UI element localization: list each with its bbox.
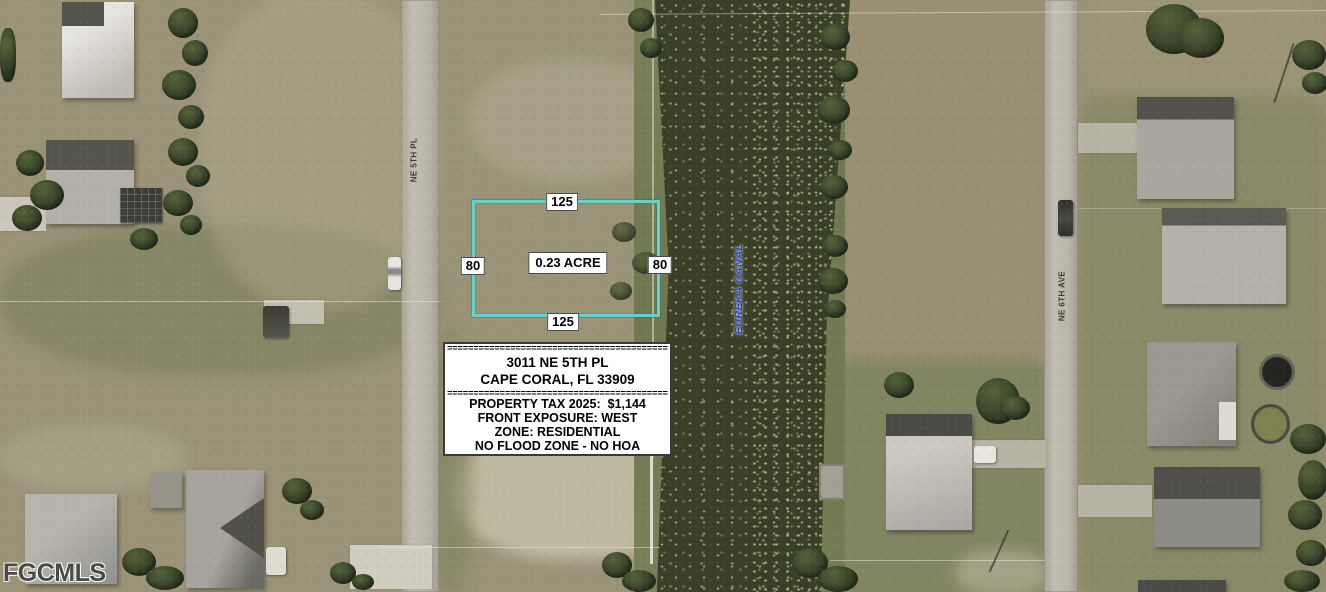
tree xyxy=(1290,424,1326,454)
house-roof xyxy=(1162,208,1286,304)
car xyxy=(263,306,289,338)
lot-dim-top-label: 125 xyxy=(546,193,578,211)
lot-dim-right-label: 80 xyxy=(648,256,672,274)
tree xyxy=(0,28,16,82)
house-roof xyxy=(886,414,972,530)
round-pool xyxy=(1251,404,1290,444)
tree xyxy=(884,372,914,398)
canal-water xyxy=(655,0,850,592)
aerial-listing-map: 125 80 80 125 0.23 ACRE ================… xyxy=(0,0,1326,592)
tree xyxy=(1296,540,1326,566)
mls-watermark: FGCMLS xyxy=(3,559,106,588)
tree xyxy=(168,138,198,166)
parcel-line xyxy=(830,560,1045,561)
pool-screen-enclosure xyxy=(120,188,162,223)
house-roof xyxy=(1137,97,1234,199)
zone-line: ZONE: RESIDENTIAL xyxy=(495,426,621,440)
property-tax-line: PROPERTY TAX 2025: $1,144 xyxy=(469,398,646,412)
tree xyxy=(1000,396,1030,420)
parcel-line xyxy=(0,301,441,302)
tree xyxy=(182,40,208,66)
tree xyxy=(1288,500,1322,530)
tree xyxy=(178,105,204,129)
tree xyxy=(832,60,858,82)
tree xyxy=(820,175,848,199)
tree xyxy=(640,38,662,58)
tree xyxy=(822,235,848,257)
round-pool xyxy=(1259,354,1295,390)
seawall-line xyxy=(650,456,653,564)
tree xyxy=(300,500,324,520)
car xyxy=(974,446,996,463)
house-roof xyxy=(1138,580,1226,592)
driveway xyxy=(1078,485,1152,517)
tree xyxy=(1292,40,1326,70)
lot-dim-left-label: 80 xyxy=(461,257,485,275)
address-line-2: CAPE CORAL, FL 33909 xyxy=(480,371,634,388)
car xyxy=(1058,200,1073,236)
property-info-box: ========================================… xyxy=(443,342,672,456)
street-name-ne-6th-ave: NE 6TH AVE xyxy=(1058,271,1067,321)
dock xyxy=(819,464,845,500)
separator-line: ========================================… xyxy=(445,344,670,353)
tree xyxy=(168,8,198,38)
lot-area-label: 0.23 ACRE xyxy=(528,252,607,274)
tree xyxy=(1178,18,1224,58)
car xyxy=(388,257,401,290)
roof-shadow-section xyxy=(62,2,104,26)
house-roof xyxy=(1147,342,1236,446)
flood-hoa-line: NO FLOOD ZONE - NO HOA xyxy=(475,440,640,454)
tree xyxy=(818,268,848,294)
driveway xyxy=(1078,123,1142,153)
pale-dirt-patch xyxy=(955,550,1050,592)
brown-field-patch xyxy=(828,0,1053,365)
tree xyxy=(828,140,852,160)
tree xyxy=(1284,570,1320,592)
palm-tree xyxy=(30,180,64,210)
tree xyxy=(162,70,196,100)
tree xyxy=(1298,460,1326,500)
address-line-1: 3011 NE 5TH PL xyxy=(506,354,608,371)
house-roof xyxy=(1154,467,1260,547)
tree xyxy=(628,8,654,32)
roof-gable-shadow xyxy=(220,498,264,558)
tree xyxy=(186,165,210,187)
house-roof xyxy=(186,470,264,588)
tree xyxy=(146,566,184,590)
tree xyxy=(818,96,850,124)
car xyxy=(266,547,286,575)
canal-name-label: EUREKA CANAL xyxy=(733,244,745,335)
road-ne-5th-pl xyxy=(401,0,439,592)
tree xyxy=(824,300,846,318)
tree xyxy=(180,215,202,235)
parcel-line xyxy=(380,547,660,548)
tree xyxy=(1302,72,1326,94)
tree xyxy=(163,190,193,216)
street-name-ne-5th-pl: NE 5TH PL xyxy=(410,138,419,183)
tree xyxy=(622,570,656,592)
patio xyxy=(1219,402,1236,440)
palm-tree xyxy=(16,150,44,176)
roof-shadow-section xyxy=(886,414,972,436)
tree xyxy=(818,566,858,592)
lot-dim-bottom-label: 125 xyxy=(547,313,579,331)
house-roof xyxy=(62,2,134,98)
tree xyxy=(820,24,850,50)
front-exposure-line: FRONT EXPOSURE: WEST xyxy=(478,412,638,426)
tree xyxy=(352,574,374,590)
palm-tree xyxy=(12,205,42,231)
tree xyxy=(130,228,158,250)
shed-roof xyxy=(150,472,182,508)
